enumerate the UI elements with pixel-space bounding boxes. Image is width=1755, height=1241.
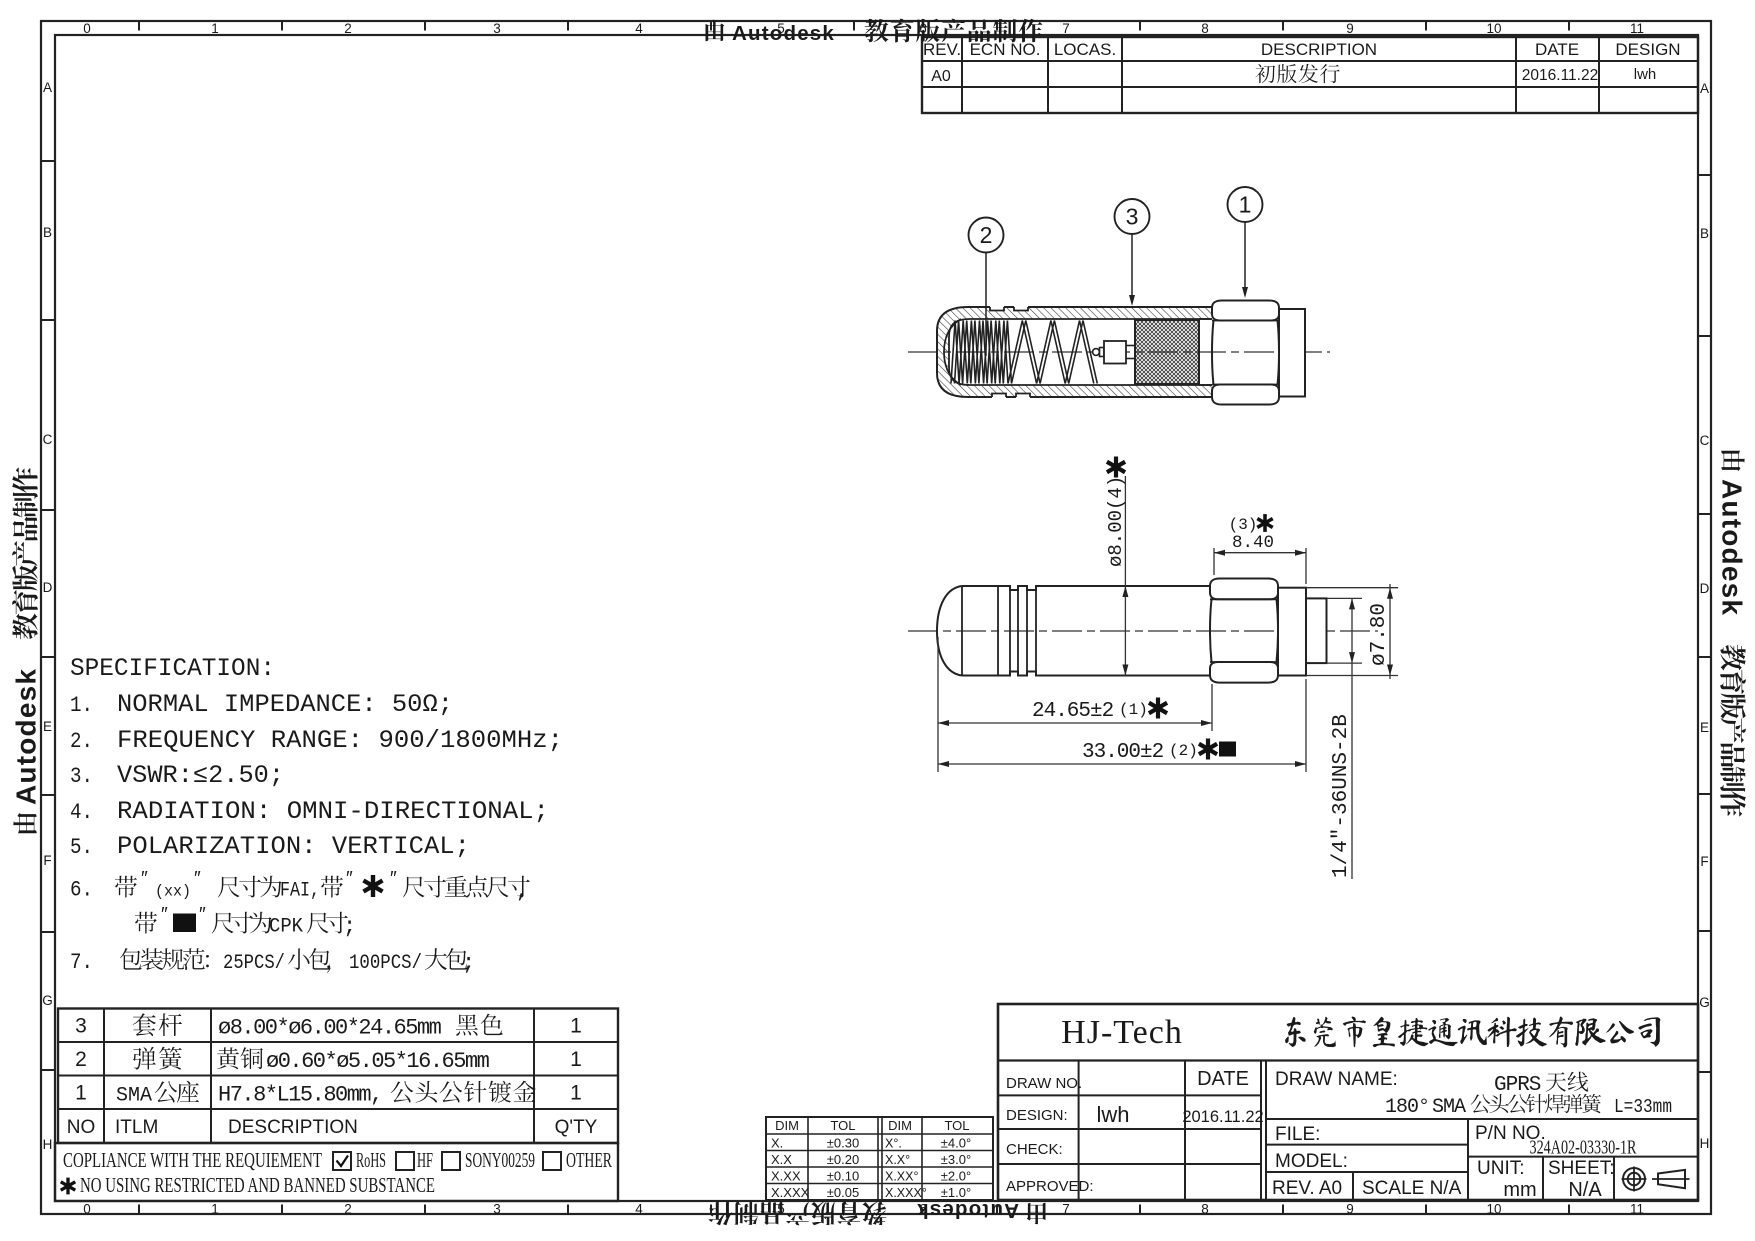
svg-text:C: C [43, 432, 53, 447]
svg-text:SMA: SMA [1432, 1096, 1466, 1119]
svg-text:X.X: X.X [771, 1152, 792, 1167]
svg-text:(1): (1) [1119, 701, 1148, 719]
svg-text:25PCS/: 25PCS/ [223, 952, 285, 975]
svg-text:″: ″ [161, 905, 168, 926]
svg-text:N/A: N/A [1568, 1179, 1602, 1201]
svg-text:7: 7 [1062, 1202, 1070, 1217]
svg-text:11: 11 [1630, 1202, 1644, 1217]
svg-text:SMA: SMA [116, 1084, 152, 1107]
svg-text:;: ; [462, 951, 475, 976]
svg-text:DESCRIPTION: DESCRIPTION [228, 1117, 358, 1138]
svg-text:2: 2 [980, 222, 993, 248]
svg-text:10: 10 [1486, 1202, 1501, 1217]
svg-text:3.: 3. [70, 764, 93, 789]
svg-text:lwh: lwh [1634, 66, 1657, 83]
svg-text:APPROVED:: APPROVED: [1006, 1178, 1094, 1195]
svg-text:11: 11 [1630, 21, 1644, 36]
svg-text:3: 3 [493, 1202, 501, 1217]
svg-text:0: 0 [83, 1202, 91, 1217]
svg-text:,: , [516, 879, 529, 904]
svg-text:1: 1 [75, 1081, 87, 1104]
svg-text:H7.8*L15.80mm,: H7.8*L15.80mm, [218, 1082, 382, 1107]
svg-text:H: H [43, 1137, 53, 1152]
svg-text:2: 2 [344, 1202, 352, 1217]
svg-text:FREQUENCY RANGE: 900/1800MHz;: FREQUENCY RANGE: 900/1800MHz; [117, 726, 563, 755]
svg-text:ECN NO.: ECN NO. [970, 40, 1041, 59]
svg-text:G: G [42, 993, 53, 1008]
svg-text:X.XXX: X.XXX [771, 1185, 810, 1200]
svg-text:9: 9 [1346, 1202, 1354, 1217]
svg-text:DESIGN: DESIGN [1615, 40, 1680, 59]
svg-text:8: 8 [1201, 1202, 1209, 1217]
svg-text:FILE:: FILE: [1275, 1124, 1320, 1145]
svg-text:1: 1 [570, 1048, 582, 1071]
svg-text:LOCAS.: LOCAS. [1054, 40, 1116, 59]
svg-text:X.XX°: X.XX° [885, 1169, 918, 1183]
svg-text:B: B [43, 225, 52, 240]
svg-text:FAI,: FAI, [280, 880, 320, 903]
svg-text:X°.: X°. [885, 1136, 902, 1150]
svg-text:″: ″ [199, 905, 206, 926]
svg-text:POLARIZATION: VERTICAL;: POLARIZATION: VERTICAL; [117, 832, 470, 861]
svg-text:″: ″ [141, 869, 148, 890]
svg-text:E: E [1700, 720, 1709, 735]
svg-text:10: 10 [1486, 21, 1501, 36]
svg-text:4.: 4. [70, 800, 93, 825]
svg-text:33.00±2: 33.00±2 [1082, 741, 1164, 764]
svg-text:2016.11.22: 2016.11.22 [1182, 1108, 1263, 1126]
svg-text:HJ-Tech: HJ-Tech [1061, 1014, 1183, 1051]
svg-text:A0: A0 [931, 68, 951, 85]
svg-text:L=33mm: L=33mm [1614, 1096, 1672, 1118]
svg-text:GPRS: GPRS [1494, 1074, 1541, 1097]
svg-text:OTHER: OTHER [566, 1148, 612, 1172]
svg-text:ø0.60*ø5.05*16.65mm: ø0.60*ø5.05*16.65mm [266, 1049, 490, 1074]
svg-text:F: F [43, 853, 51, 868]
svg-text:H: H [1700, 1136, 1710, 1151]
svg-text:mm: mm [1503, 1179, 1536, 1201]
svg-text:DRAW NAME:: DRAW NAME: [1275, 1069, 1398, 1090]
svg-text:5.: 5. [70, 835, 93, 860]
svg-text:E: E [43, 719, 52, 734]
svg-text:1: 1 [570, 1081, 582, 1104]
svg-text:7: 7 [1062, 21, 1070, 36]
svg-text:2: 2 [344, 21, 352, 36]
svg-text:±4.0°: ±4.0° [941, 1135, 971, 1150]
svg-text:180°: 180° [1385, 1096, 1429, 1119]
svg-text:RoHS: RoHS [356, 1148, 386, 1172]
svg-text:CHECK:: CHECK: [1006, 1141, 1063, 1158]
svg-text:F: F [1700, 854, 1708, 869]
svg-text:B: B [1700, 226, 1709, 241]
svg-text:DRAW NO.: DRAW NO. [1006, 1075, 1082, 1092]
svg-text:DATE: DATE [1535, 40, 1579, 59]
svg-text:1: 1 [570, 1014, 582, 1037]
svg-text:(xx): (xx) [155, 883, 191, 901]
svg-text:0: 0 [83, 21, 91, 36]
svg-text:ø8.00*ø6.00*24.65mm: ø8.00*ø6.00*24.65mm [218, 1015, 442, 1040]
svg-text:DESIGN:: DESIGN: [1006, 1107, 1068, 1124]
svg-text:2016.11.22: 2016.11.22 [1522, 67, 1598, 84]
svg-text:Autodesk: Autodesk [11, 668, 42, 805]
svg-text:NORMAL IMPEDANCE: 50Ω;: NORMAL IMPEDANCE: 50Ω; [117, 690, 453, 719]
svg-text:A: A [43, 80, 52, 95]
svg-text:8: 8 [1201, 21, 1209, 36]
svg-text:C: C [1700, 433, 1710, 448]
svg-text:CPK: CPK [269, 916, 303, 939]
svg-text:SCALE N/A: SCALE N/A [1362, 1178, 1462, 1199]
svg-text:324A02-03330-1R: 324A02-03330-1R [1530, 1137, 1637, 1159]
svg-text:±1.0°: ±1.0° [941, 1185, 971, 1200]
svg-text:D: D [43, 580, 53, 595]
svg-text:3: 3 [75, 1014, 87, 1037]
svg-text:±2.0°: ±2.0° [941, 1168, 971, 1183]
svg-text:G: G [1699, 995, 1710, 1010]
svg-text:NO USING RESTRICTED AND BANNED: NO USING RESTRICTED AND BANNED SUBSTANCE [80, 1173, 435, 1197]
svg-text:SPECIFICATION:: SPECIFICATION: [70, 654, 275, 683]
svg-text:TOL: TOL [830, 1118, 855, 1133]
svg-text:ø7.80: ø7.80 [1368, 603, 1391, 666]
svg-text:X.X°: X.X° [885, 1153, 910, 1167]
svg-text:DIM: DIM [775, 1118, 799, 1133]
svg-text:DESCRIPTION: DESCRIPTION [1261, 40, 1377, 59]
svg-text:VSWR:≤2.50;: VSWR:≤2.50; [117, 761, 284, 790]
svg-text:Autodesk: Autodesk [732, 22, 835, 45]
svg-text:1: 1 [1239, 192, 1252, 218]
svg-text:DIM: DIM [888, 1118, 912, 1133]
svg-text:X.XXX°: X.XXX° [885, 1186, 927, 1200]
svg-text:4: 4 [635, 21, 643, 36]
svg-text:3: 3 [1126, 204, 1139, 230]
svg-text:REV.: REV. [923, 40, 961, 59]
svg-text:A: A [1700, 81, 1709, 96]
svg-text:100PCS/: 100PCS/ [349, 952, 422, 975]
svg-text:1: 1 [211, 1202, 219, 1217]
svg-text:(3): (3) [1229, 516, 1258, 534]
svg-text:8.40: 8.40 [1232, 533, 1274, 553]
svg-text:±3.0°: ±3.0° [941, 1152, 971, 1167]
svg-text:SHEET:: SHEET: [1548, 1158, 1615, 1179]
svg-text:UNIT:: UNIT: [1477, 1158, 1525, 1179]
svg-text:6.: 6. [70, 878, 93, 903]
svg-text:NO: NO [67, 1117, 96, 1138]
svg-text:Autodesk: Autodesk [1717, 479, 1748, 616]
svg-text:(2): (2) [1169, 742, 1198, 760]
svg-text:±0.30: ±0.30 [827, 1135, 859, 1150]
svg-text:1/4″-36UNS-2B: 1/4″-36UNS-2B [1330, 714, 1353, 878]
svg-text:HF: HF [417, 1148, 433, 1172]
svg-text:Q'TY: Q'TY [555, 1117, 598, 1138]
svg-text:3: 3 [493, 21, 501, 36]
svg-text:Autodesk: Autodesk [916, 1199, 1019, 1222]
svg-text:D: D [1700, 581, 1710, 596]
svg-text:COPLIANCE WITH THE REQUIEMENT: COPLIANCE WITH THE REQUIEMENT [63, 1148, 322, 1172]
svg-text:DATE: DATE [1197, 1068, 1249, 1090]
svg-text:9: 9 [1346, 21, 1354, 36]
svg-text:2.: 2. [70, 729, 93, 754]
svg-text:2: 2 [75, 1048, 87, 1071]
svg-text:±0.05: ±0.05 [827, 1185, 859, 1200]
svg-text:″: ″ [346, 869, 353, 890]
svg-text:RADIATION: OMNI-DIRECTIONAL;: RADIATION: OMNI-DIRECTIONAL; [117, 797, 549, 826]
svg-text:;: ; [343, 915, 356, 940]
svg-text:ø8.00(4): ø8.00(4) [1105, 476, 1127, 567]
svg-text:X.XX: X.XX [771, 1168, 801, 1183]
svg-text:1: 1 [211, 21, 219, 36]
svg-text:TOL: TOL [944, 1118, 969, 1133]
svg-text:MODEL:: MODEL: [1275, 1151, 1348, 1172]
svg-text:SONY00259: SONY00259 [465, 1148, 535, 1172]
svg-text:REV. A0: REV. A0 [1272, 1178, 1342, 1199]
svg-text:24.65±2: 24.65±2 [1032, 700, 1114, 723]
svg-text:7.: 7. [70, 950, 93, 975]
svg-text:4: 4 [635, 1202, 643, 1217]
svg-text:″: ″ [194, 869, 201, 890]
svg-text:″: ″ [390, 869, 397, 890]
svg-text:ITLM: ITLM [115, 1117, 158, 1138]
svg-text:±0.10: ±0.10 [827, 1168, 859, 1183]
svg-text:X.: X. [771, 1135, 783, 1150]
svg-text:1.: 1. [70, 693, 93, 718]
svg-text:lwh: lwh [1096, 1102, 1129, 1127]
svg-text:±0.20: ±0.20 [827, 1152, 859, 1167]
